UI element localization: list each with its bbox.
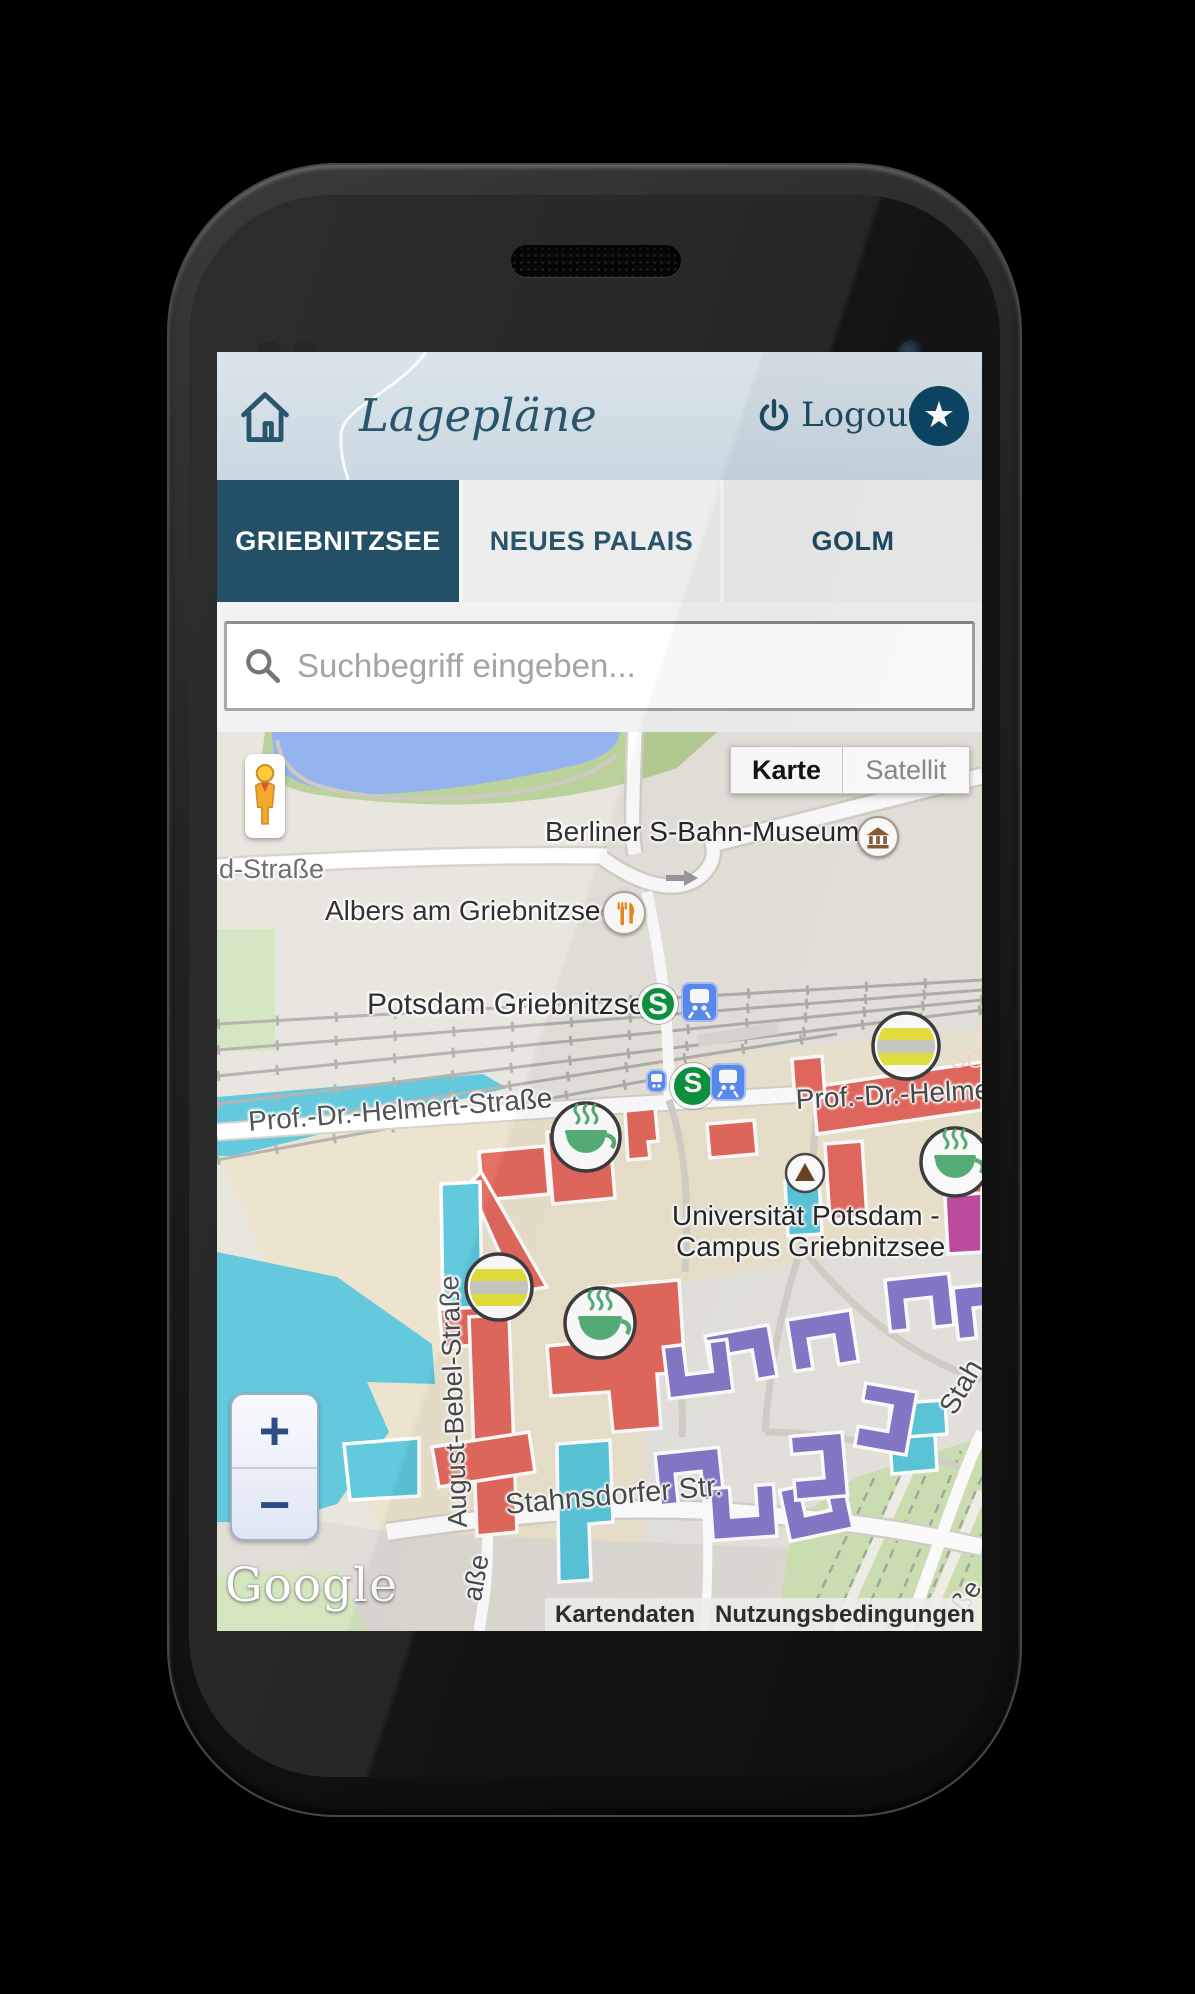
kartendaten-label: Kartendaten — [545, 1598, 705, 1631]
train-icon — [710, 1063, 746, 1101]
app-header: Lagepläne Logout ★ — [217, 352, 982, 480]
tab-label: GOLM — [812, 526, 895, 557]
search-input[interactable]: Suchbegriff eingeben... — [224, 621, 975, 711]
search-section: Suchbegriff eingeben... — [217, 602, 982, 732]
restaurant-label: Albers am Griebnitzsee — [325, 895, 597, 927]
sbahn-letter: S — [684, 1067, 703, 1098]
star-badge[interactable]: ★ — [909, 386, 969, 446]
map-type-switcher: Karte Satellit — [730, 746, 970, 794]
museum-label: Berliner S-Bahn-Museum — [545, 816, 859, 848]
zoom-out-button[interactable]: − — [232, 1469, 317, 1541]
map-type-satellit-button[interactable]: Satellit — [842, 746, 970, 794]
marker-cafe[interactable] — [549, 1100, 623, 1174]
university-label-line2: Campus Griebnitzsee — [676, 1231, 945, 1263]
logout-button[interactable]: Logout — [801, 352, 922, 478]
building-label-fragment: SO- — [950, 1047, 982, 1075]
home-button[interactable] — [239, 386, 291, 446]
tab-neues-palais[interactable]: NEUES PALAIS — [463, 480, 724, 602]
sbahn-logo: S — [638, 984, 678, 1024]
map-view[interactable]: d-Straße Berliner S-Bahn-Museum Albers a… — [217, 732, 982, 1631]
tab-golm[interactable]: GOLM — [724, 480, 982, 602]
tab-griebnitzsee[interactable]: GRIEBNITZSEE — [217, 480, 463, 602]
tab-label: GRIEBNITZSEE — [235, 526, 441, 557]
pegman-control[interactable] — [245, 754, 285, 838]
map-type-karte-button[interactable]: Karte — [730, 746, 842, 794]
sbahn-letter: S — [648, 988, 668, 1021]
marker-cafe[interactable] — [562, 1285, 638, 1361]
museum-icon — [857, 816, 899, 858]
pegman-icon — [251, 764, 279, 828]
restaurant-icon — [602, 891, 646, 935]
map-type-label: Satellit — [865, 755, 946, 786]
phone-frame: Lagepläne Logout ★ GRIEBNITZSEE NEUES PA… — [167, 163, 1022, 1817]
campus-tabs: GRIEBNITZSEE NEUES PALAIS GOLM — [217, 480, 982, 602]
app-screen: Lagepläne Logout ★ GRIEBNITZSEE NEUES PA… — [217, 352, 982, 1631]
zoom-control: + − — [230, 1393, 319, 1541]
university-label-line1: Universität Potsdam - — [672, 1200, 940, 1232]
tab-label: NEUES PALAIS — [490, 526, 694, 557]
building-magenta — [945, 1193, 982, 1254]
map-type-label: Karte — [752, 755, 821, 786]
marker-yellow-striped[interactable] — [463, 1251, 535, 1323]
screenshot-canvas: Lagepläne Logout ★ GRIEBNITZSEE NEUES PA… — [0, 0, 1195, 1994]
page-title: Lagepläne — [359, 352, 597, 480]
station-label: Potsdam Griebnitzsee — [367, 988, 662, 1022]
star-icon: ★ — [923, 394, 955, 435]
train-icon — [681, 982, 718, 1022]
nutzungsbedingungen-link[interactable]: Nutzungsbedingungen — [705, 1598, 982, 1631]
marker-cone[interactable] — [783, 1151, 827, 1195]
street-label-partial: d-Straße — [219, 854, 324, 885]
zoom-in-button[interactable]: + — [232, 1395, 317, 1467]
google-logo[interactable]: Google — [225, 1558, 398, 1613]
bus-icon — [646, 1069, 667, 1093]
one-way-arrow-icon — [664, 870, 698, 886]
search-icon — [243, 646, 283, 686]
marker-cafe[interactable] — [918, 1125, 982, 1199]
search-placeholder: Suchbegriff eingeben... — [297, 647, 636, 685]
speaker-grille — [511, 245, 681, 277]
home-icon — [239, 386, 291, 446]
power-icon — [757, 398, 791, 436]
marker-yellow-striped[interactable] — [870, 1010, 942, 1082]
